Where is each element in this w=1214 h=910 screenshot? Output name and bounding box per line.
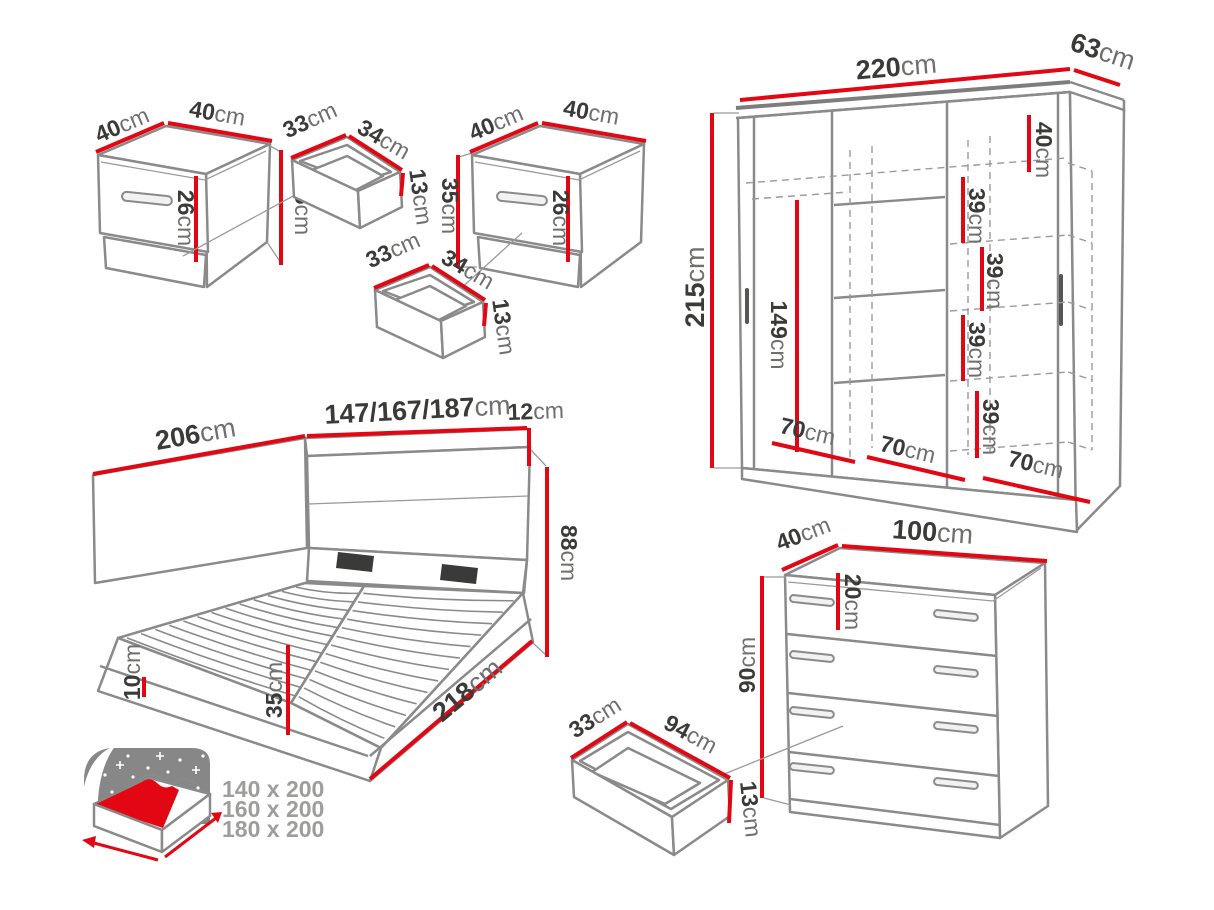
- label-height: 13cm: [735, 780, 767, 839]
- label-depth: 63cm: [1067, 27, 1139, 76]
- dim-line-depth: [1074, 70, 1120, 85]
- label-width: 40cm: [187, 95, 247, 130]
- label-hanging: 149cm: [766, 300, 792, 369]
- dim-line-height: [729, 780, 731, 823]
- label-height: 13cm: [404, 167, 438, 226]
- label-depth: 33cm: [279, 96, 341, 143]
- label-width: 220cm: [855, 49, 938, 86]
- chest-side-face: [995, 563, 1048, 838]
- wardrobe: 220cm 63cm 215cm 149cm 40cm 39cm 39cm 39…: [680, 27, 1139, 532]
- label-front: 26cm: [548, 190, 574, 246]
- label-gap1: 39cm: [964, 188, 990, 244]
- label-width: 100cm: [891, 514, 974, 550]
- wardrobe-side-face: [1070, 92, 1124, 531]
- mattress-size-legend: 140 x 200 160 x 200 180 x 200: [82, 745, 325, 860]
- width-arrow-head: [82, 836, 96, 848]
- chest-of-drawers: 40cm 100cm 90cm 20cm: [734, 511, 1048, 838]
- extension-line: [267, 242, 281, 263]
- label-depth: 33cm: [362, 226, 424, 273]
- diagram-canvas: 40cm 40cm 35cm 26cm 33cm 34cm 13cm 40cm …: [0, 0, 1214, 910]
- label-gap4: 39cm: [978, 399, 1004, 455]
- label-gap3: 39cm: [964, 322, 990, 378]
- extension-line: [764, 798, 791, 805]
- headboard-face: [307, 447, 530, 560]
- bed: 206cm 147/167/187cm 12cm 88cm 10cm 35cm …: [93, 390, 582, 781]
- dim-line-height: [484, 303, 486, 326]
- label-plinth: 10cm: [119, 644, 145, 700]
- label-height: 90cm: [734, 637, 760, 693]
- furniture-dimension-diagram: 40cm 40cm 35cm 26cm 33cm 34cm 13cm 40cm …: [0, 0, 1214, 910]
- label-top-panel: 12cm: [507, 397, 564, 425]
- label-height: 215cm: [680, 246, 710, 327]
- label-height: 13cm: [487, 297, 521, 356]
- label-front: 26cm: [173, 190, 199, 246]
- extension-line: [459, 153, 472, 157]
- label-width: 40cm: [561, 94, 621, 129]
- label-widths: 147/167/187cm: [324, 390, 511, 430]
- extension-line: [530, 449, 546, 466]
- label-height: 35cm: [437, 178, 463, 234]
- label-headboard: 88cm: [556, 525, 582, 581]
- label-frame: 35cm: [261, 662, 287, 718]
- label-drawer-top: 20cm: [840, 574, 866, 630]
- extension-line: [533, 643, 547, 656]
- label-gap-top: 40cm: [1031, 122, 1057, 178]
- left-side-wall: [93, 438, 307, 583]
- legend-size-3: 180 x 200: [222, 816, 324, 842]
- label-gap2: 39cm: [982, 253, 1008, 309]
- dim-line-height: [401, 173, 403, 196]
